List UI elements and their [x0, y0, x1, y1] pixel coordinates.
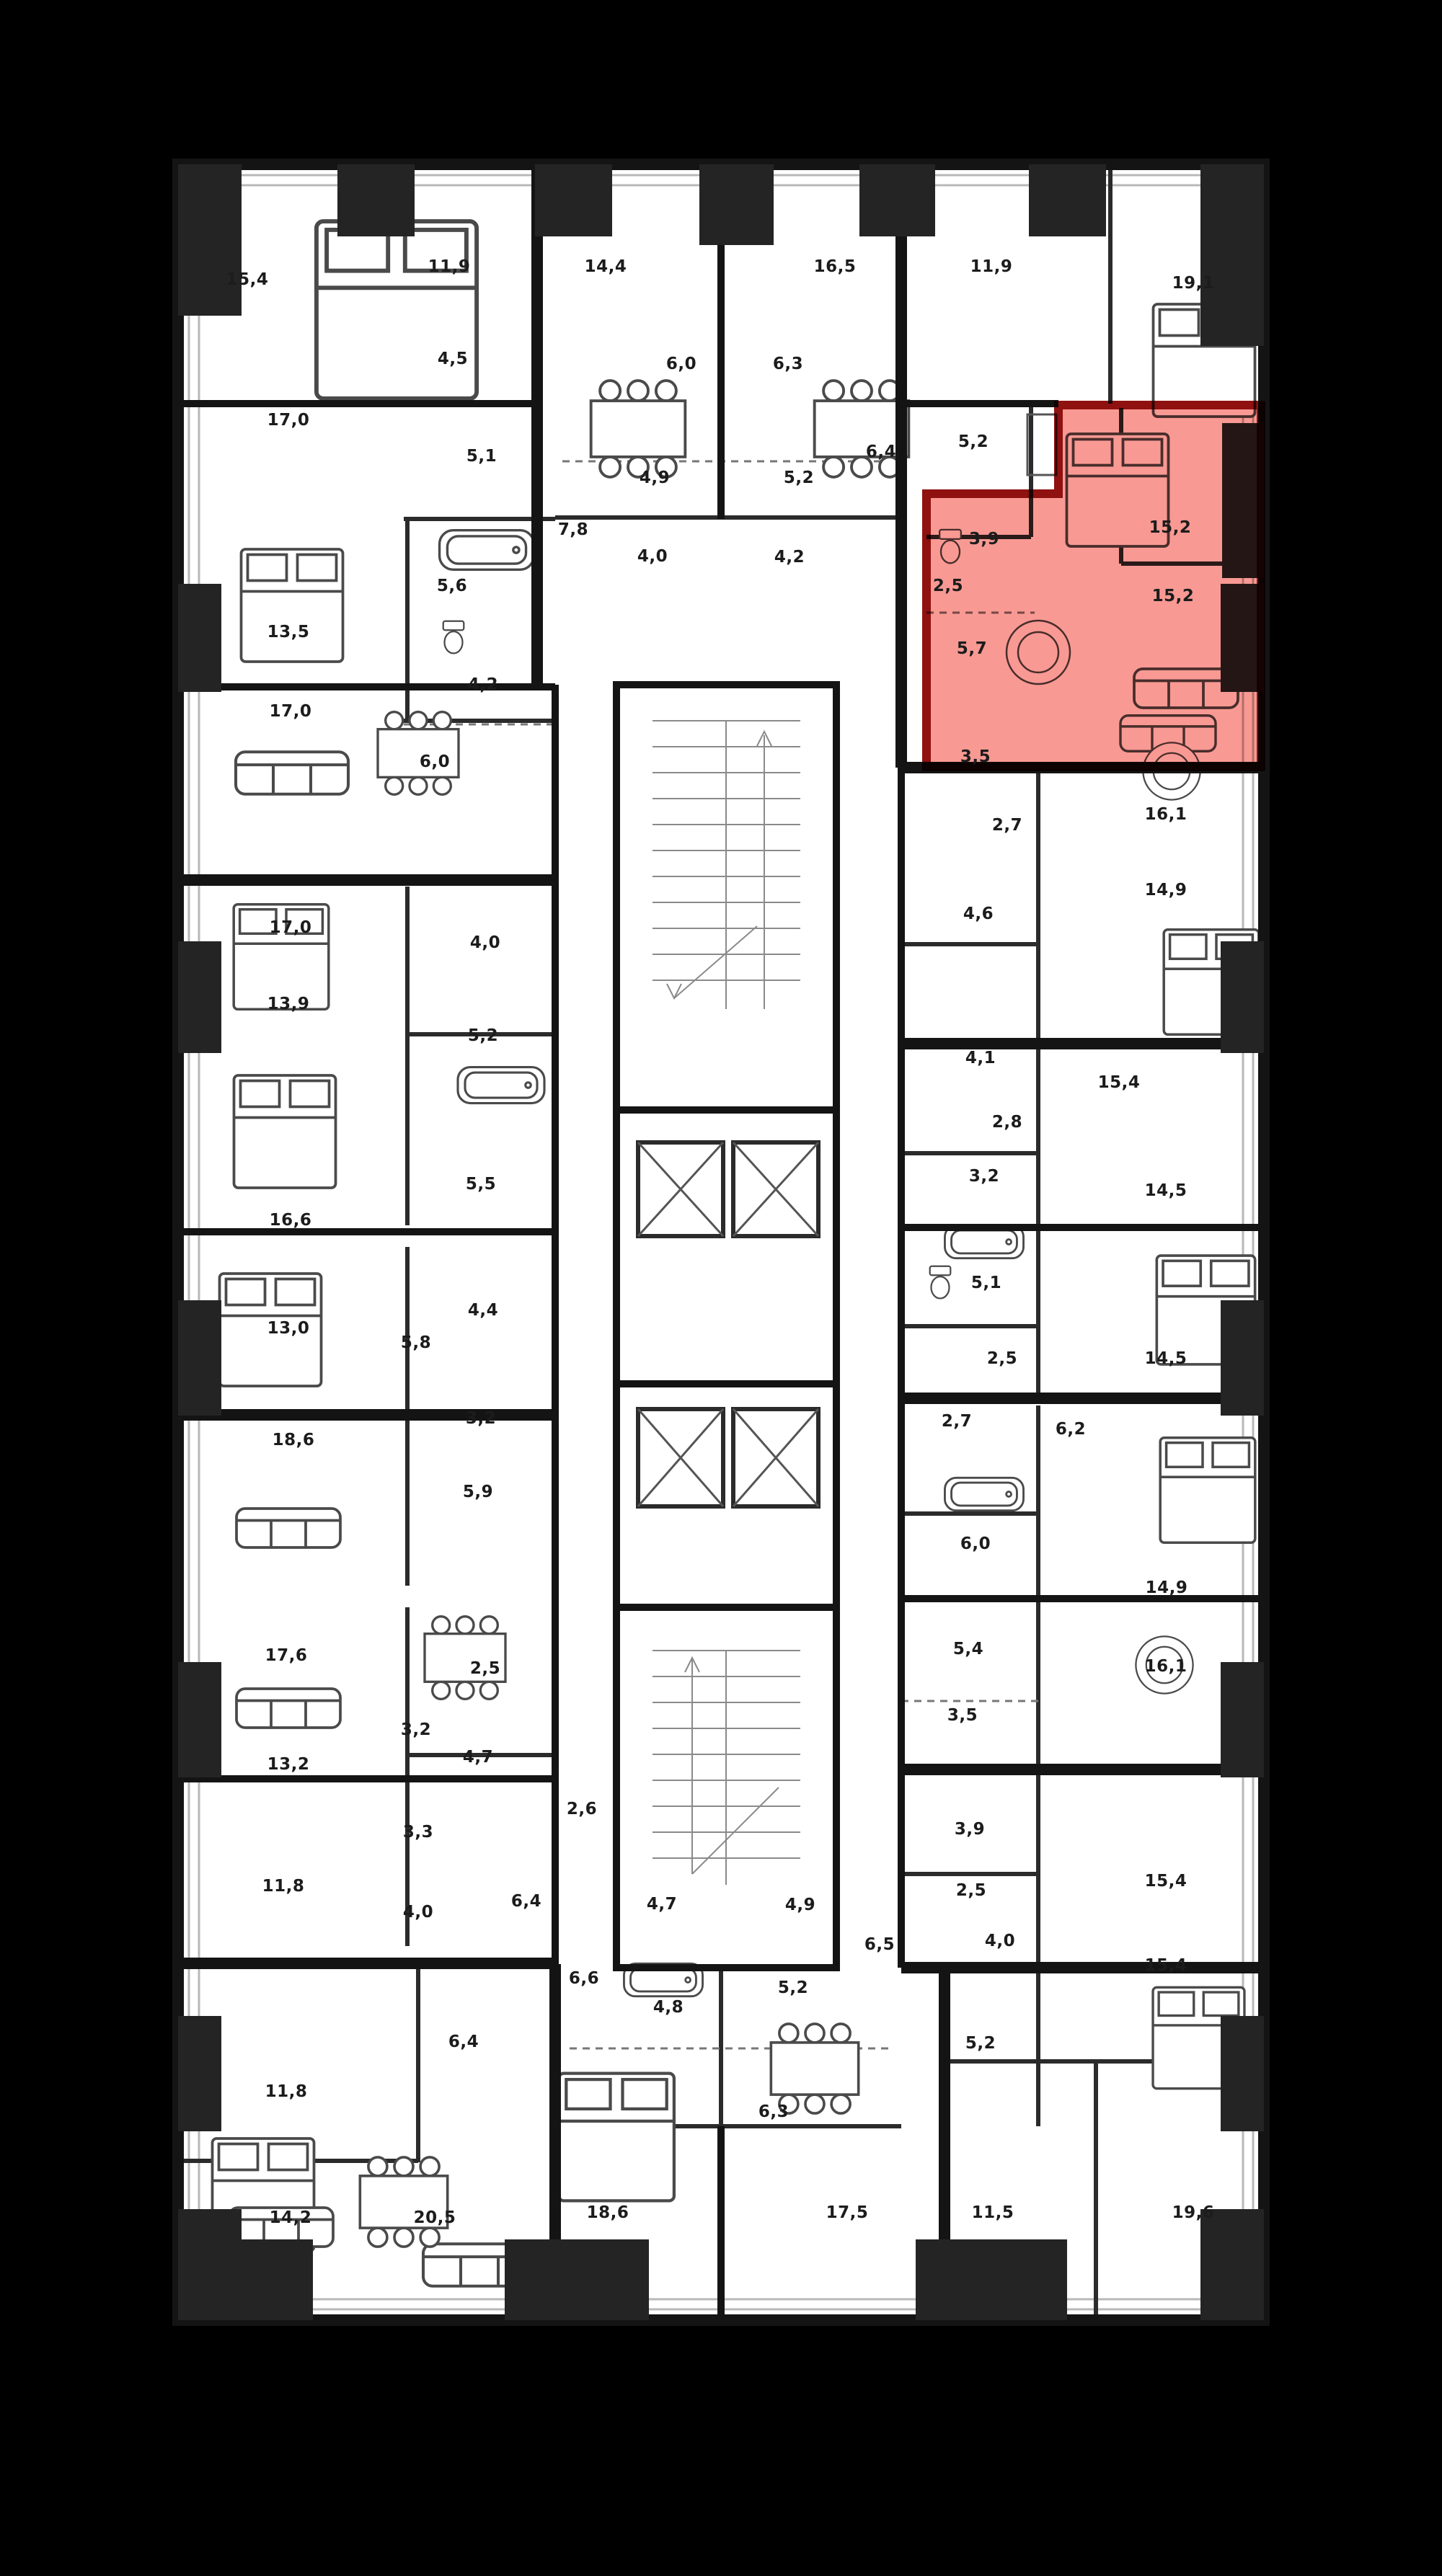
- room-area-label: 13,2: [267, 1755, 310, 1774]
- room-area-label: 4,4: [468, 1301, 498, 1320]
- room-area-label: 3,9: [955, 1820, 985, 1839]
- room-area-label: 5,2: [965, 2034, 996, 2053]
- room-area-label: 4,7: [463, 1748, 493, 1767]
- room-area-label: 18,6: [587, 2203, 629, 2222]
- room-area-label: 6,6: [569, 1969, 599, 1988]
- room-area-label: 4,8: [653, 1998, 684, 2017]
- room-area-label: 4,1: [965, 1049, 996, 1067]
- room-area-label: 19,1: [1172, 274, 1215, 293]
- room-area-label: 19,6: [1172, 2203, 1215, 2222]
- room-area-label: 4,2: [468, 675, 498, 694]
- room-area-label: 14,9: [1146, 1578, 1188, 1597]
- room-area-label: 14,2: [270, 2208, 312, 2227]
- room-area-label: 16,1: [1145, 1657, 1187, 1676]
- room-area-label: 20,5: [414, 2208, 456, 2227]
- room-area-label: 11,5: [972, 2203, 1014, 2222]
- room-area-label: 5,5: [466, 1175, 496, 1194]
- room-area-label: 2,7: [992, 816, 1022, 835]
- room-area-label: 6,0: [420, 752, 450, 771]
- room-area-label: 6,4: [448, 2033, 479, 2051]
- room-area-label: 6,0: [960, 1535, 991, 1553]
- room-area-label: 4,0: [637, 547, 668, 566]
- room-area-label: 2,5: [956, 1881, 986, 1900]
- room-area-label: 3,2: [466, 1409, 496, 1428]
- room-area-label: 6,2: [1056, 1420, 1086, 1439]
- room-area-label: 6,4: [866, 443, 896, 461]
- room-area-label: 2,5: [987, 1349, 1017, 1368]
- room-area-label: 3,2: [969, 1167, 999, 1186]
- room-area-label: 5,6: [437, 577, 467, 595]
- room-area-label: 14,5: [1145, 1181, 1187, 1200]
- room-area-label: 6,0: [666, 355, 696, 373]
- room-area-label: 15,4: [1145, 1956, 1187, 1975]
- room-area-label: 17,0: [270, 702, 312, 721]
- room-area-label: 14,4: [585, 257, 627, 276]
- room-area-label: 5,2: [468, 1026, 498, 1045]
- room-area-label: 4,7: [647, 1895, 677, 1914]
- room-area-label: 15,4: [1098, 1073, 1141, 1092]
- room-area-label: 3,5: [947, 1706, 978, 1725]
- room-area-label: 6,4: [511, 1892, 541, 1911]
- room-area-label: 3,2: [401, 1720, 431, 1739]
- room-area-label: 6,5: [864, 1935, 895, 1954]
- room-area-label: 5,4: [953, 1640, 983, 1658]
- room-area-label: 2,7: [942, 1412, 972, 1431]
- room-area-label: 16,6: [270, 1211, 312, 1230]
- room-area-label: 4,6: [963, 905, 994, 923]
- room-area-label: 4,9: [785, 1896, 815, 1914]
- room-area-label: 6,3: [773, 355, 803, 373]
- room-area-label: 13,9: [267, 995, 310, 1013]
- room-area-label: 17,0: [267, 411, 310, 430]
- room-area-label-highlighted: 15,2: [1152, 587, 1195, 605]
- room-area-label: 2,6: [567, 1800, 597, 1818]
- room-area-label: 17,6: [265, 1646, 308, 1665]
- room-area-label: 5,2: [784, 468, 814, 487]
- room-area-label: 3,5: [960, 747, 991, 766]
- room-area-label: 5,2: [778, 1978, 808, 1997]
- room-area-label: 2,5: [470, 1659, 500, 1678]
- room-labels-layer: 15,411,914,416,511,919,14,56,06,317,05,1…: [0, 0, 1442, 2576]
- room-area-label: 7,8: [558, 520, 588, 539]
- room-area-label: 4,9: [640, 468, 670, 487]
- room-area-label: 5,2: [958, 432, 988, 451]
- room-area-label: 6,3: [758, 2102, 789, 2121]
- room-area-label: 15,4: [1145, 1872, 1187, 1891]
- room-area-label: 13,0: [267, 1319, 310, 1338]
- room-area-label: 4,0: [985, 1932, 1015, 1950]
- room-area-label: 15,4: [226, 270, 269, 289]
- room-area-label-highlighted: 15,2: [1149, 518, 1192, 537]
- room-area-label: 14,5: [1145, 1349, 1187, 1368]
- room-area-label: 4,0: [403, 1903, 433, 1922]
- room-area-label: 18,6: [273, 1431, 315, 1449]
- room-area-label: 17,0: [270, 918, 312, 937]
- room-area-label: 13,5: [267, 623, 310, 641]
- room-area-label-highlighted: 5,7: [957, 639, 987, 658]
- room-area-label: 5,8: [401, 1333, 431, 1352]
- room-area-label: 4,2: [774, 548, 805, 567]
- room-area-label: 4,5: [438, 350, 468, 368]
- room-area-label: 16,5: [814, 257, 857, 276]
- room-area-label: 17,5: [826, 2203, 869, 2222]
- room-area-label: 11,8: [262, 1877, 305, 1896]
- room-area-label: 5,9: [463, 1483, 493, 1501]
- room-area-label: 14,9: [1145, 881, 1187, 900]
- room-area-label: 11,9: [970, 257, 1013, 276]
- room-area-label: 2,8: [992, 1113, 1022, 1132]
- room-area-label: 5,1: [466, 447, 497, 466]
- room-area-label-highlighted: 2,5: [933, 577, 963, 595]
- floor-plan-canvas: 15,411,914,416,511,919,14,56,06,317,05,1…: [0, 0, 1442, 2576]
- room-area-label: 3,3: [403, 1823, 433, 1842]
- room-area-label: 16,1: [1145, 805, 1187, 824]
- room-area-label: 4,0: [470, 933, 500, 952]
- room-area-label: 5,1: [971, 1274, 1001, 1292]
- room-area-label-highlighted: 3,9: [969, 530, 999, 548]
- room-area-label: 11,9: [428, 257, 471, 276]
- room-area-label: 11,8: [265, 2082, 308, 2101]
